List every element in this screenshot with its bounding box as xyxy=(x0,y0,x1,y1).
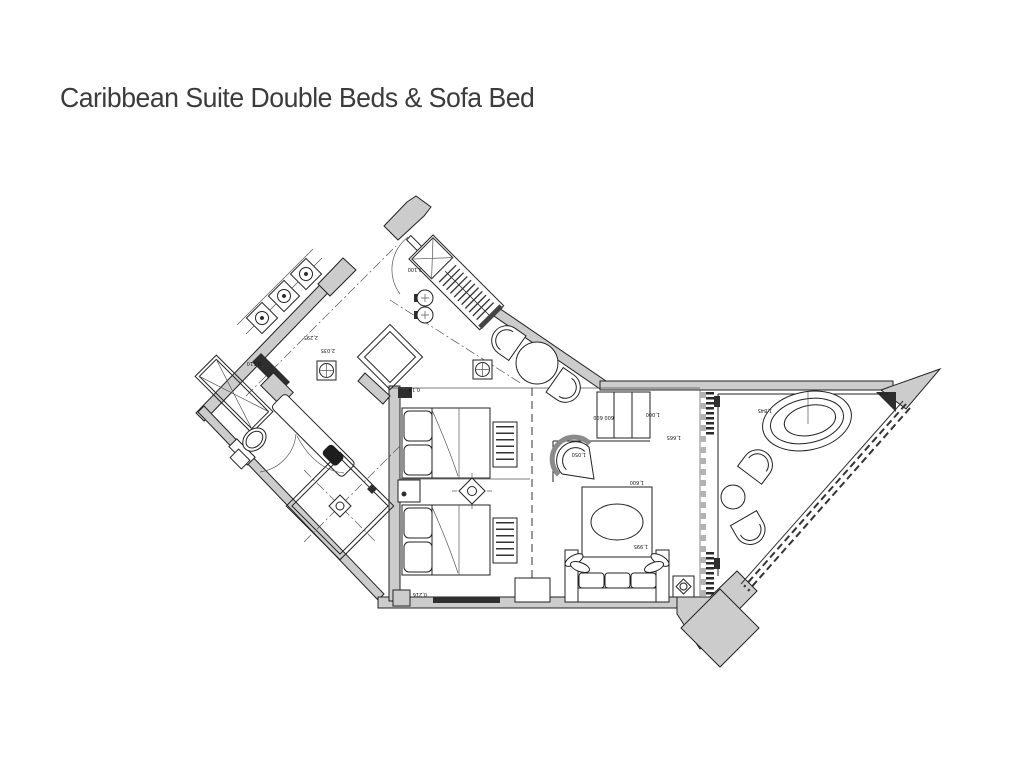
terrace-room xyxy=(703,383,910,597)
bed-wall-pier-bottom xyxy=(393,590,410,606)
door-jamb xyxy=(714,558,720,569)
dimension-label: 1,000 xyxy=(646,411,660,417)
pillow xyxy=(404,542,432,572)
entry-door-arc xyxy=(392,237,408,294)
ceiling-light-symbol-2 xyxy=(317,361,336,380)
lounge-chair-2 xyxy=(731,511,771,550)
wall-heater xyxy=(433,597,500,603)
nw-notch-wall xyxy=(318,258,356,296)
floor-lamp xyxy=(673,576,694,597)
nightstand xyxy=(398,480,420,502)
vanity-counter xyxy=(271,393,356,478)
dimension-label: 1,845 xyxy=(758,407,772,413)
dimension-label: 1,995 xyxy=(634,543,648,549)
wall-light-symbol xyxy=(367,484,377,494)
luggage-bench-1 xyxy=(493,422,517,467)
dimension-label: 2,035 xyxy=(321,347,335,353)
sofa-bed xyxy=(563,550,671,602)
bathtub xyxy=(757,383,857,458)
pillow xyxy=(404,508,432,538)
dimension-label: 2,100 xyxy=(408,266,422,272)
right-wedge-corner xyxy=(876,392,896,412)
pillow xyxy=(404,411,432,441)
double-bed-1 xyxy=(402,408,490,478)
downlight-symbol xyxy=(414,290,433,323)
dimension-label: 1,600 xyxy=(630,479,644,485)
double-bed-2 xyxy=(402,505,490,575)
dimension-label: 1,665 xyxy=(667,434,681,440)
door-jamb xyxy=(714,396,720,407)
entry-apex-wall xyxy=(384,196,431,240)
dimension-label: 1,050 xyxy=(572,451,586,457)
floor-plan: 2,100 2,295 2,035 0,510 0,19 0,216 600 6… xyxy=(180,135,960,695)
pillow xyxy=(404,445,432,475)
dimension-label: 600 600 xyxy=(593,414,614,420)
round-table xyxy=(516,342,558,384)
luggage-bench-2 xyxy=(493,518,517,563)
ceiling-light-symbol xyxy=(473,360,492,379)
side-table xyxy=(721,485,745,509)
bench-table xyxy=(515,578,550,602)
dimension-label: 0,510 xyxy=(247,360,261,366)
entry-hall xyxy=(357,235,586,408)
dimension-label: 0,19 xyxy=(409,386,420,392)
page: { "page": { "title": "Caribbean Suite Do… xyxy=(0,0,1024,768)
living-area xyxy=(543,392,694,602)
dimension-label: 0,216 xyxy=(413,591,427,597)
bedroom xyxy=(398,408,550,603)
dimension-label: 2,295 xyxy=(304,334,318,340)
page-title: Caribbean Suite Double Beds & Sofa Bed xyxy=(60,82,534,114)
top-wall xyxy=(600,381,893,390)
lounge-chair-1 xyxy=(738,444,779,484)
sw-diagonal-wall xyxy=(198,406,384,600)
nightstand-lamp xyxy=(402,492,407,497)
